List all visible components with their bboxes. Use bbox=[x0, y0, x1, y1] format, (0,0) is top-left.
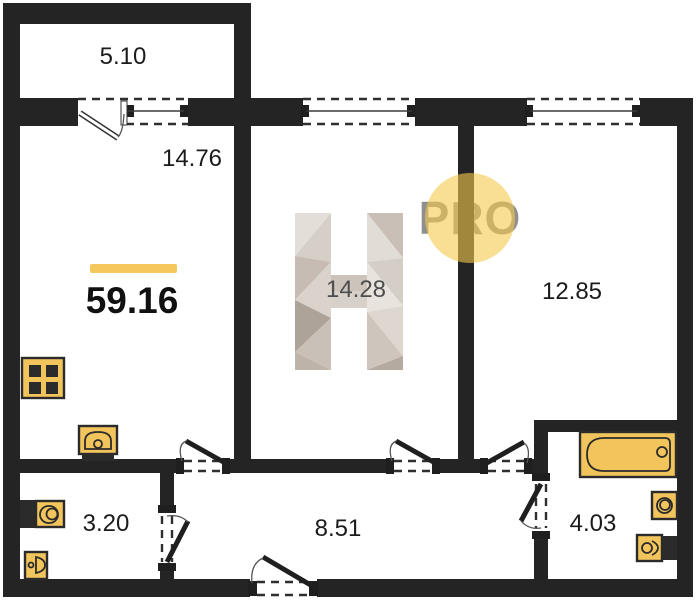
area-label-living-room: 14.76 bbox=[162, 145, 222, 172]
area-label-center-room: 14.28 bbox=[326, 276, 386, 303]
total-area-accent-bar bbox=[90, 264, 177, 273]
total-area-label: 59.16 bbox=[86, 280, 179, 321]
kitchen-sink-icon bbox=[79, 426, 117, 461]
wall-left-outer bbox=[3, 3, 20, 597]
toilet-left-icon bbox=[20, 500, 64, 528]
wall-balcony-top bbox=[3, 3, 251, 24]
floor-plan-page: PRO bbox=[0, 0, 696, 600]
area-label-bathroom-right: 4.03 bbox=[570, 510, 617, 537]
toilet-right-icon bbox=[637, 535, 677, 561]
area-label-wc-left: 3.20 bbox=[83, 510, 130, 537]
sink-right-icon bbox=[652, 492, 677, 519]
wall-bottom-right bbox=[317, 579, 693, 597]
wall-partition-left bbox=[234, 3, 251, 473]
area-label-balcony: 5.10 bbox=[100, 43, 147, 70]
area-label-hallway: 8.51 bbox=[315, 515, 362, 542]
pro-badge-circle bbox=[425, 173, 515, 263]
bathtub-icon bbox=[580, 432, 676, 477]
wall-bottom-left bbox=[3, 579, 250, 597]
wall-right-outer bbox=[677, 98, 693, 597]
wall-bathroom-top bbox=[534, 420, 693, 432]
total-area-group: 59.16 bbox=[86, 264, 179, 321]
sink-left-icon bbox=[25, 552, 47, 579]
floor-plan-drawing: PRO bbox=[0, 0, 696, 600]
stove-icon bbox=[22, 358, 64, 398]
area-label-right-room: 12.85 bbox=[542, 278, 602, 305]
